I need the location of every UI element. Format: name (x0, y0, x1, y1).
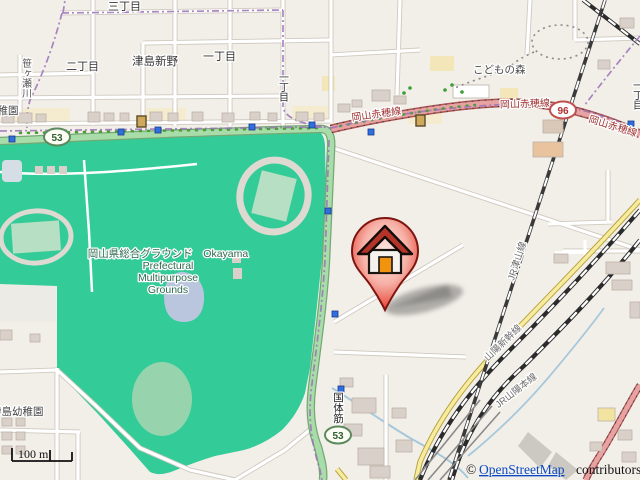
district-label-tsushima-shinno: 津島新野 (132, 54, 178, 68)
river-label-sasagase: 笹ヶ瀬川 (20, 57, 32, 98)
district-label-itchome: 一丁目 (203, 51, 236, 63)
route-shield-53-south: 53 (325, 427, 351, 444)
map-canvas[interactable]: 三丁目 二丁目 津島新野 一丁目 一丁目 一丁目 こどもの森 笹ヶ瀬川 国体筋 … (0, 0, 640, 480)
kindergarten-label-ijima: 伊島幼稚園 (0, 405, 44, 418)
route-shield-53-west: 53 (44, 129, 70, 146)
route-shield-53-west-text: 53 (51, 133, 63, 144)
forest-label-kodomo-no-mori: こどもの森 (473, 63, 526, 76)
attribution-osm-link[interactable]: OpenStreetMap (479, 462, 565, 477)
scale-bar-label: 100 m (18, 447, 49, 461)
district-label-sanchome: 三丁目 (108, 1, 141, 13)
district-label-nichome: 二丁目 (66, 61, 99, 73)
athletics-pitch (11, 220, 61, 253)
building (47, 166, 55, 174)
map-render: 三丁目 二丁目 津島新野 一丁目 一丁目 一丁目 こどもの森 笹ヶ瀬川 国体筋 … (0, 0, 640, 480)
route-shield-96-text: 96 (557, 106, 569, 117)
building (233, 268, 242, 279)
building (35, 166, 43, 174)
building (59, 166, 67, 174)
district-label-itchome-vertical-west: 一丁目 (277, 72, 289, 102)
park-name-line3: Multipurpose (138, 272, 198, 284)
attribution-contributors: contributors (576, 462, 640, 477)
park-name-line4: Grounds (148, 284, 188, 296)
road-label-kokutai-suji: 国体筋 (332, 392, 344, 424)
route-shield-96: 96 (550, 102, 576, 119)
route-shield-53-south-text: 53 (332, 431, 344, 442)
baseball-field (132, 362, 192, 436)
parking-area (0, 284, 56, 322)
attribution: © OpenStreetMap contributors (466, 462, 640, 477)
district-label-itchome-vertical-east: 一丁目 (631, 80, 640, 110)
park-name-line2: Prefectural (143, 260, 194, 272)
kindergarten-label-partial: 幼稚園 (0, 104, 19, 117)
attribution-copyright: © (466, 462, 476, 477)
pool (2, 160, 22, 182)
park-name-line1: 岡山県総合グラウンド Okayama (88, 247, 249, 260)
